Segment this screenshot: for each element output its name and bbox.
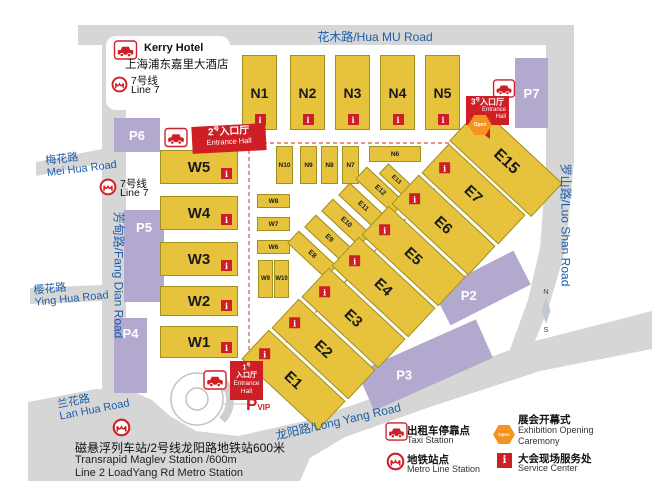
hotel-metro-line-en: Line 7 [131, 84, 160, 96]
service-info-icon: i [439, 162, 450, 173]
hall-w4-label: W4 [188, 205, 211, 222]
compass-needle-icon [542, 297, 551, 324]
hall-n6: N6 [369, 146, 421, 162]
entrance-1-cn: 入口厅 [230, 372, 263, 380]
service-info-icon: i [393, 114, 404, 125]
entrance-1-en2: Hall [230, 388, 263, 395]
metro-icon [99, 178, 117, 196]
service-info-icon: i [319, 286, 330, 297]
hall-w3-label: W3 [188, 251, 211, 268]
hall-w1: W1i [160, 326, 238, 358]
parking-p7-label: P7 [524, 86, 540, 101]
hall-e8-label: E8 [306, 249, 317, 260]
entrance-1-number-line: 1号 [230, 363, 263, 372]
hall-e11-label: E11 [356, 200, 370, 213]
road-label-huamu: 花木路/Hua MU Road [295, 28, 455, 45]
expo-map: P2 P3 P4 P5 P6 P7 N1i N2i N3i N4i N5i N1… [0, 0, 652, 492]
compass-south: S [536, 325, 556, 334]
hall-n4: N4i [380, 55, 415, 130]
hall-e12-label: E12 [373, 184, 387, 198]
road-label-luoshan: 罗山路/Luo Shan Road [558, 164, 575, 287]
hall-n2-label: N2 [299, 85, 317, 101]
hall-w10: W10 [274, 260, 289, 298]
hall-e7-label: E7 [461, 182, 486, 207]
hall-w10-label: W10 [275, 276, 287, 282]
taxi-icon [203, 370, 227, 390]
hall-n10-label: N10 [279, 162, 291, 169]
taxi-icon [164, 127, 188, 148]
service-info-icon: i [349, 255, 360, 266]
entrance-hall-2: 2号入口厅 Entrance Hall [191, 123, 266, 154]
metro7-line-en: Line 7 [120, 187, 149, 199]
service-info-icon: i [497, 453, 512, 468]
hall-w6-label: W6 [269, 244, 279, 251]
service-info-icon: i [289, 317, 300, 328]
service-info-icon: i [259, 348, 270, 359]
vip-parking-label: PVIP [246, 395, 270, 415]
hall-w8: W8 [257, 194, 290, 208]
vip-parking-sub: VIP [257, 403, 270, 412]
legend-metro-en: Metro Line Station [407, 464, 480, 474]
hall-w1-label: W1 [188, 334, 211, 351]
hall-n9-label: N9 [304, 162, 312, 169]
entrance-3-en1: Entrance [466, 107, 509, 114]
hall-e13-label: E13 [390, 174, 402, 186]
hall-w8-label: W8 [269, 198, 279, 205]
parking-p6-label: P6 [129, 128, 145, 143]
compass: N S [536, 287, 556, 334]
opening-ceremony-icon: Open [493, 425, 515, 444]
footer-metro-en: Line 2 LoadYang Rd Metro Station [75, 467, 243, 479]
parking-p5: P5 [124, 210, 164, 302]
hall-e6-label: E6 [431, 213, 456, 238]
service-info-icon: i [221, 300, 232, 311]
hall-e5-label: E5 [401, 244, 426, 269]
hall-w7-label: W7 [269, 221, 279, 228]
service-info-icon: i [303, 114, 314, 125]
hall-e4-label: E4 [371, 275, 396, 300]
hall-n8-label: N8 [325, 162, 333, 169]
hall-e2-label: E2 [311, 337, 336, 362]
hall-w3: W3i [160, 242, 238, 276]
service-info-icon: i [221, 342, 232, 353]
hall-w9-label: W9 [261, 276, 270, 282]
hall-w5: W5i [160, 150, 238, 184]
hall-n4-label: N4 [389, 85, 407, 101]
hall-e1-label: E1 [281, 368, 306, 393]
parking-p3-label: P3 [396, 367, 412, 382]
legend-taxi-en: Taxi Station [407, 435, 454, 445]
road-label-yinghua: 樱花路Ying Hua Road [33, 277, 109, 309]
hall-w2: W2i [160, 286, 238, 316]
service-info-icon: i [438, 114, 449, 125]
parking-p5-label: P5 [136, 220, 152, 235]
service-info-icon: i [221, 260, 232, 271]
hall-n1: N1i [242, 55, 277, 130]
service-info-icon: i [379, 224, 390, 235]
vip-parking-p: P [246, 395, 257, 414]
service-info-icon: i [221, 168, 232, 179]
hotel-name-cn: 上海浦东嘉里大酒店 [125, 56, 229, 72]
compass-north: N [536, 287, 556, 296]
hall-e9-label: E9 [323, 233, 334, 244]
hall-w7: W7 [257, 217, 290, 231]
parking-p6: P6 [114, 118, 160, 152]
entrance-3-title: 3号入口厅 [466, 97, 509, 107]
hall-n9: N9 [300, 146, 317, 184]
legend-service-en: Service Center [518, 463, 578, 473]
road-label-meihua: 梅花路Mei Hua Road [45, 147, 118, 180]
road-label-fangdian: 芳甸路/Fang Dian Road [111, 212, 128, 339]
hall-n6-label: N6 [391, 151, 399, 158]
parking-p7: P7 [515, 58, 548, 128]
entrance-3-cn: 入口厅 [480, 98, 504, 107]
service-info-icon: i [221, 214, 232, 225]
parking-p2-label: P2 [461, 287, 477, 302]
hall-e10-label: E10 [339, 216, 353, 230]
hall-w6: W6 [257, 240, 290, 254]
legend-open-en2: Caremony [518, 436, 560, 446]
legend-open-en1: Exhibition Opening [518, 425, 594, 435]
hall-n10: N10 [276, 146, 293, 184]
footer-maglev-en: Transrapid Maglev Station /600m [75, 454, 237, 466]
hall-n7-label: N7 [346, 162, 354, 169]
hall-w4: W4i [160, 196, 238, 230]
hall-e15-label: E15 [489, 146, 522, 179]
hotel-name-en: Kerry Hotel [144, 42, 203, 54]
hall-n8: N8 [321, 146, 338, 184]
metro-icon [386, 452, 405, 471]
hall-w9: W9 [258, 260, 273, 298]
kerry-hotel-card: Kerry Hotel 上海浦东嘉里大酒店 7号线 Line 7 [106, 36, 230, 110]
metro-icon [112, 418, 131, 437]
hall-n3: N3i [335, 55, 370, 130]
hall-e3-label: E3 [341, 306, 366, 331]
metro-icon [111, 76, 128, 93]
hall-w5-label: W5 [188, 159, 211, 176]
service-info-icon: i [348, 114, 359, 125]
hall-n2: N2i [290, 55, 325, 130]
entrance-1-en1: Entrance [230, 380, 263, 387]
service-info-icon: i [409, 193, 420, 204]
hall-n5: N5i [425, 55, 460, 130]
hall-n5-label: N5 [434, 85, 452, 101]
hall-w2-label: W2 [188, 293, 211, 310]
taxi-icon [385, 422, 408, 441]
entrance-1-sup: 号 [246, 362, 250, 367]
hall-n1-label: N1 [251, 85, 269, 101]
hall-n3-label: N3 [344, 85, 362, 101]
roundabout-inner [186, 388, 208, 410]
